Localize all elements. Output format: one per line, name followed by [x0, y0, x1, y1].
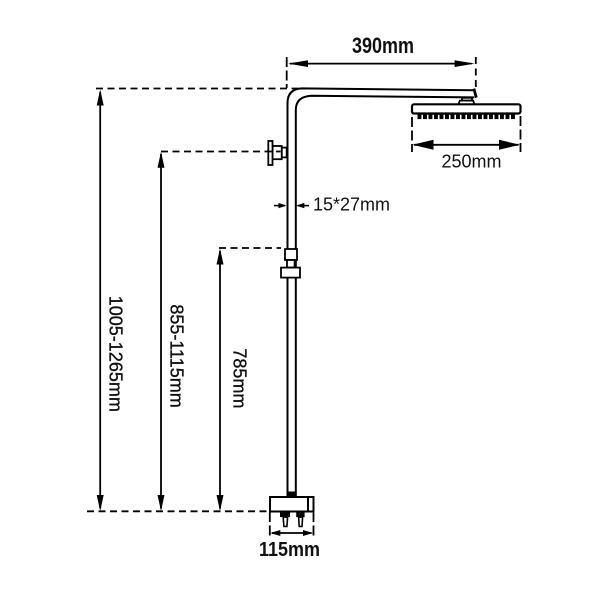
svg-text:390mm: 390mm [352, 33, 414, 58]
svg-text:855-1115mm: 855-1115mm [166, 304, 186, 407]
svg-text:115mm: 115mm [259, 539, 320, 561]
svg-text:250mm: 250mm [441, 152, 501, 172]
svg-text:1005-1265mm: 1005-1265mm [106, 296, 126, 412]
svg-text:15*27mm: 15*27mm [313, 195, 390, 215]
svg-text:785mm: 785mm [229, 348, 249, 408]
